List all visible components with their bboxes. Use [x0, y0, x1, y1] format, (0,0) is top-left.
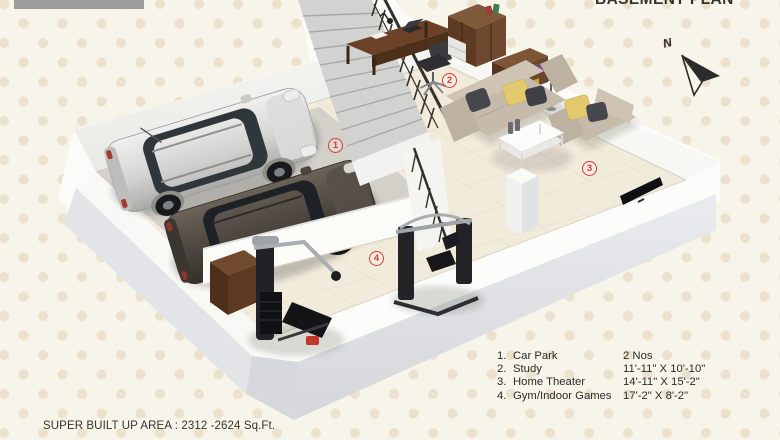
speaker-pillar — [506, 168, 538, 234]
legend-value: 17'-2" X 8'-2" — [623, 390, 688, 402]
wardrobe-cabinet — [448, 4, 506, 67]
legend-number: 2. — [497, 363, 513, 375]
room-marker-carpark: 1 — [328, 138, 343, 153]
super-built-up-area-text: SUPER BUILT UP AREA : 2312 -2624 Sq.Ft. — [43, 420, 275, 432]
legend-value: 11'-11" X 10'-10" — [623, 363, 705, 375]
legend-row-home-theater: 3. Home Theater 14'-11" X 15'-2" — [497, 376, 769, 389]
room-marker-home-theater: 3 — [582, 161, 597, 176]
legend-row-carpark: 1. Car Park 2 Nos — [497, 350, 769, 363]
legend-label: Study — [513, 363, 623, 375]
legend-label: Car Park — [513, 350, 623, 362]
legend-number: 3. — [497, 376, 513, 388]
legend-row-study: 2. Study 11'-11" X 10'-10" — [497, 363, 769, 376]
legend-label: Home Theater — [513, 376, 623, 388]
room-marker-study: 2 — [442, 73, 457, 88]
legend-row-gym: 4. Gym/Indoor Games 17'-2" X 8'-2" — [497, 390, 769, 403]
room-marker-gym: 4 — [369, 251, 384, 266]
legend-label: Gym/Indoor Games — [513, 390, 623, 402]
legend-value: 2 Nos — [623, 350, 653, 362]
legend-number: 1. — [497, 350, 513, 362]
room-legend: 1. Car Park 2 Nos 2. Study 11'-11" X 10'… — [497, 350, 769, 403]
basement-plan-poster: BASEMENT PLAN N 1 2 3 4 1. Car Park 2 No… — [0, 0, 780, 440]
compass: N — [655, 28, 725, 100]
page-title: BASEMENT PLAN — [595, 0, 734, 9]
legend-number: 4. — [497, 390, 513, 402]
legend-value: 14'-11" X 15'-2" — [623, 376, 700, 388]
